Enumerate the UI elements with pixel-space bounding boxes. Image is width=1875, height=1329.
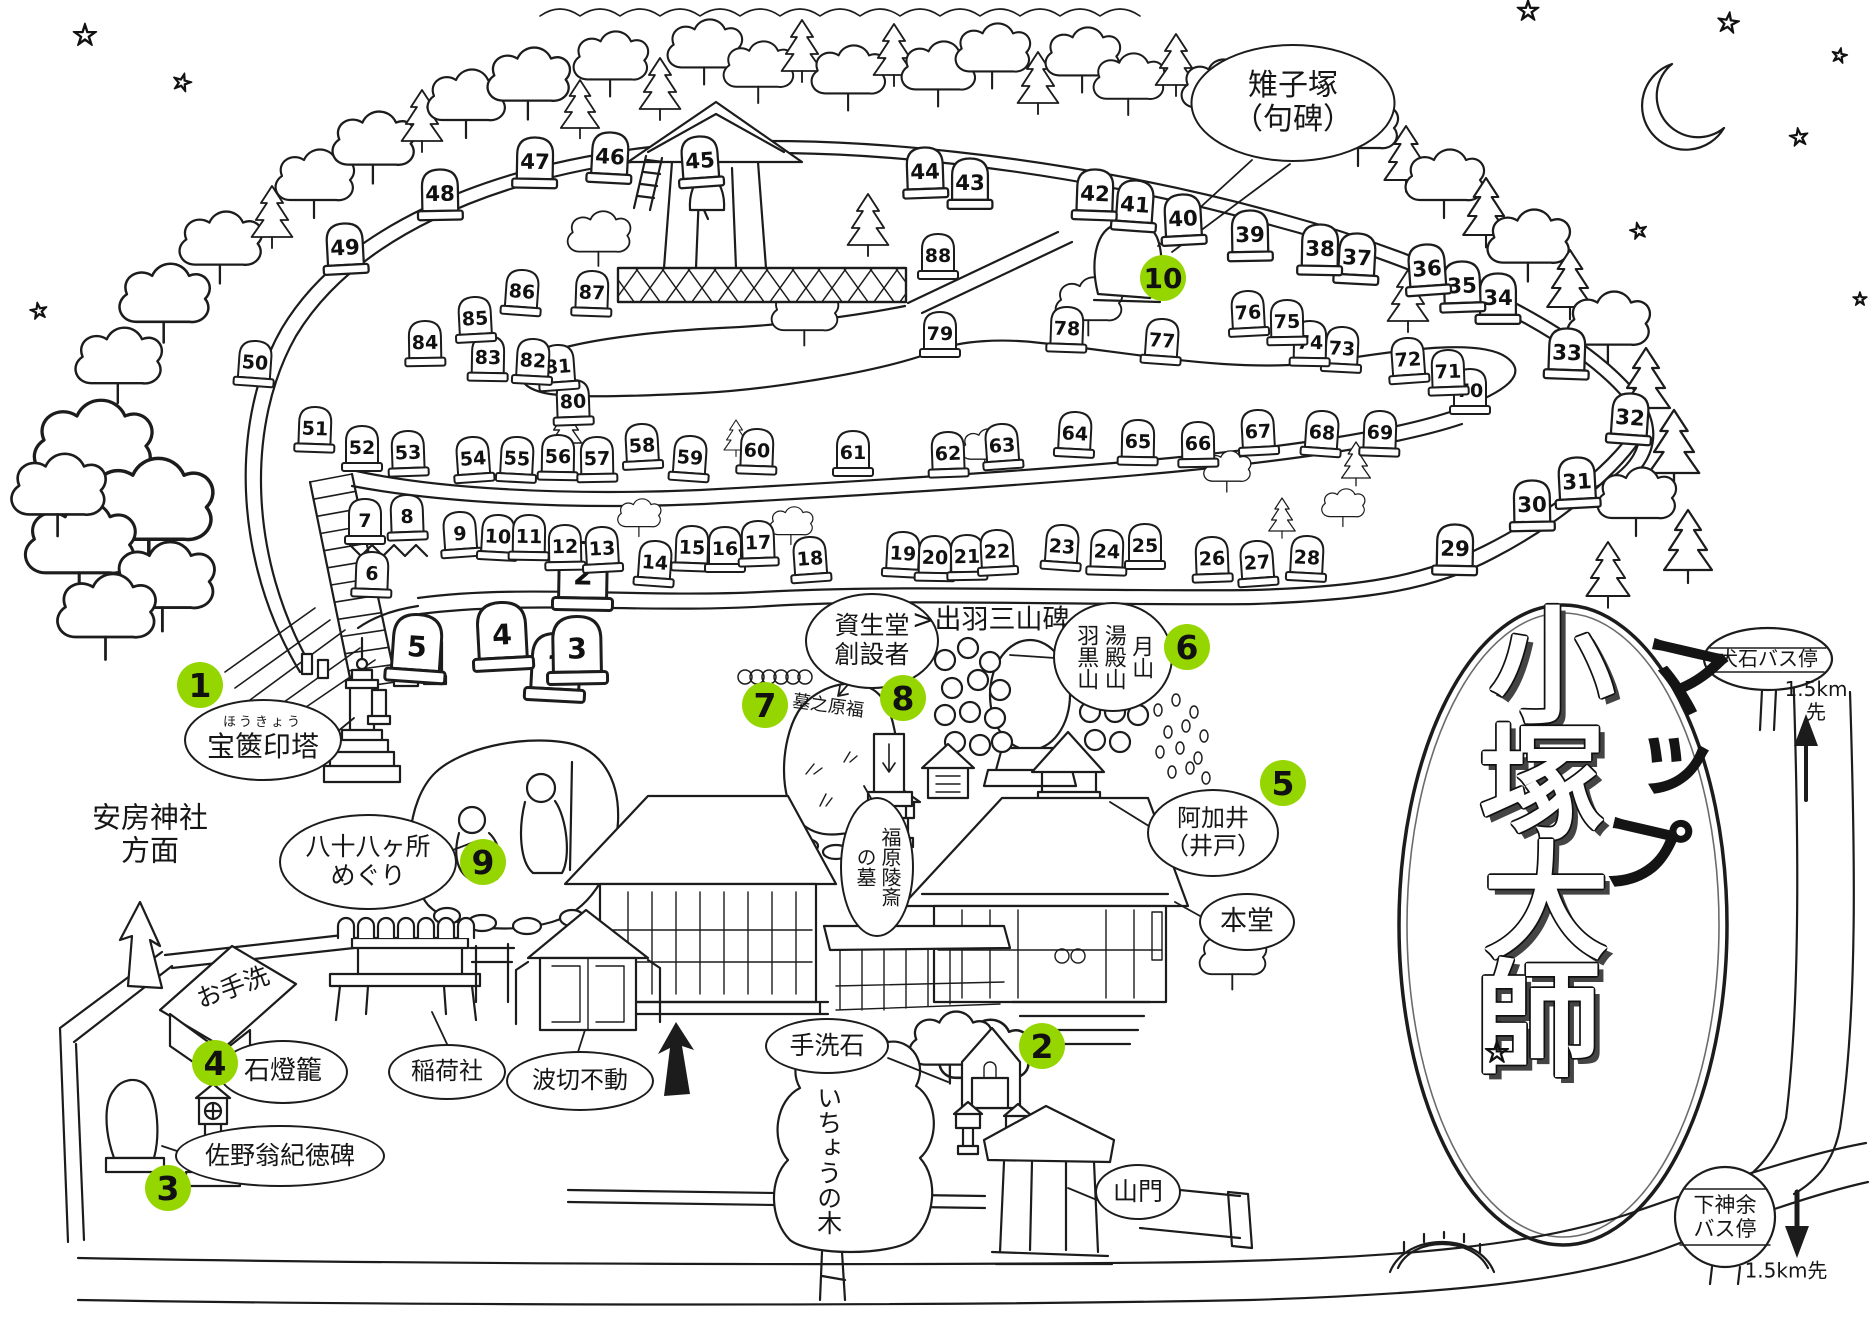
spot-marker-number: 9 (472, 843, 495, 882)
labels-overlay: 雉子塚 （句碑）ほうきょう宝篋印塔安房神社 方面八十八ヶ所 めぐりお手洗石燈籠佐… (0, 0, 1875, 1329)
label-text: 本堂 (1220, 906, 1274, 937)
label-inuishi-bus: 犬石バス停 (1718, 648, 1818, 671)
label-text: 安房神社 方面 (92, 802, 208, 869)
label-text: 佐野翁紀徳碑 (205, 1142, 355, 1171)
spot-marker-number: 10 (1144, 262, 1183, 295)
spot-marker-10: 10 (1140, 255, 1186, 301)
label-text: 雉子塚 （句碑） (1233, 69, 1353, 138)
label-shimokanamari-km: 1.5km先 (1745, 1260, 1828, 1283)
label-namikiri: 波切不動 (506, 1051, 654, 1111)
spot-marker-5: 5 (1260, 760, 1306, 806)
spot-marker-number: 8 (892, 679, 915, 718)
spot-marker-number: 3 (157, 1169, 180, 1208)
label-text: 月山 湯殿山 羽黒山 (1072, 624, 1155, 690)
label-text: 八十八ヶ所 めぐり (305, 833, 430, 891)
spot-marker-number: 1 (189, 666, 212, 705)
label-text: 犬石バス停 (1718, 648, 1818, 671)
label-awa-jinja: 安房神社 方面 (92, 802, 208, 869)
spot-marker-number: 4 (204, 1044, 227, 1083)
furigana: ほうきょう (223, 716, 303, 731)
label-ishidoro: 石燈籠 (218, 1040, 348, 1104)
label-text: 石燈籠 (244, 1057, 322, 1087)
label-icho: いちょうの木 (812, 1085, 843, 1235)
label-text: 資生堂 創設者 (834, 612, 909, 670)
label-akai: 阿加井 （井戸） (1147, 789, 1279, 877)
label-sanzan: 月山 湯殿山 羽黒山 (1053, 602, 1173, 712)
label-text: 墓之原福 (791, 692, 865, 723)
label-text: 福原陵斎 の墓 (852, 827, 902, 907)
spot-marker-number: 5 (1272, 764, 1295, 803)
label-inuishi-km: 1.5km先 (1785, 678, 1848, 724)
spot-marker-4: 4 (192, 1040, 238, 1086)
label-otearai: お手洗 (193, 962, 273, 1015)
spot-marker-2: 2 (1019, 1023, 1065, 1069)
label-text: 宝篋印塔 (207, 731, 319, 763)
label-hondo: 本堂 (1199, 893, 1295, 951)
kozuka-daishi-map: ☆☆☆☆☆☆☆☆☆☆ (0, 0, 1875, 1329)
spot-marker-9: 9 (460, 839, 506, 885)
label-text: 1.5km先 (1745, 1260, 1828, 1283)
spot-marker-1: 1 (177, 662, 223, 708)
label-text: お手洗 (193, 962, 273, 1015)
label-hachijuhachi: 八十八ヶ所 めぐり (279, 814, 457, 910)
label-tearaiishi: 手洗石 (765, 1018, 889, 1074)
label-fukuhara-rock: 墓之原福 (791, 692, 865, 723)
label-fukuhara-grave: 福原陵斎 の墓 (840, 797, 914, 937)
label-text: 下神余 バス停 (1694, 1193, 1757, 1241)
spot-marker-number: 6 (1176, 628, 1199, 667)
spot-marker-7: 7 (742, 682, 788, 728)
spot-marker-6: 6 (1164, 624, 1210, 670)
label-text: 1.5km先 (1785, 678, 1848, 724)
label-kijizuka: 雉子塚 （句碑） (1191, 44, 1396, 162)
spot-marker-number: 2 (1031, 1027, 1054, 1066)
label-text: 阿加井 （井戸） (1165, 805, 1261, 860)
label-text: 波切不動 (532, 1067, 628, 1095)
label-text: 手洗石 (789, 1032, 864, 1061)
label-text: 稲荷社 (411, 1058, 483, 1086)
label-sano: 佐野翁紀徳碑 (175, 1125, 385, 1187)
label-hokyointo: ほうきょう宝篋印塔 (184, 699, 342, 781)
label-sanmon: 山門 (1095, 1164, 1181, 1220)
label-shimokanamari-bus: 下神余 バス停 (1694, 1193, 1757, 1241)
spot-marker-3: 3 (145, 1165, 191, 1211)
spot-marker-number: 7 (754, 686, 777, 725)
spot-marker-8: 8 (880, 675, 926, 721)
label-text: 山門 (1113, 1178, 1163, 1207)
label-inari: 稲荷社 (388, 1044, 506, 1100)
label-text: いちょうの木 (812, 1085, 843, 1235)
